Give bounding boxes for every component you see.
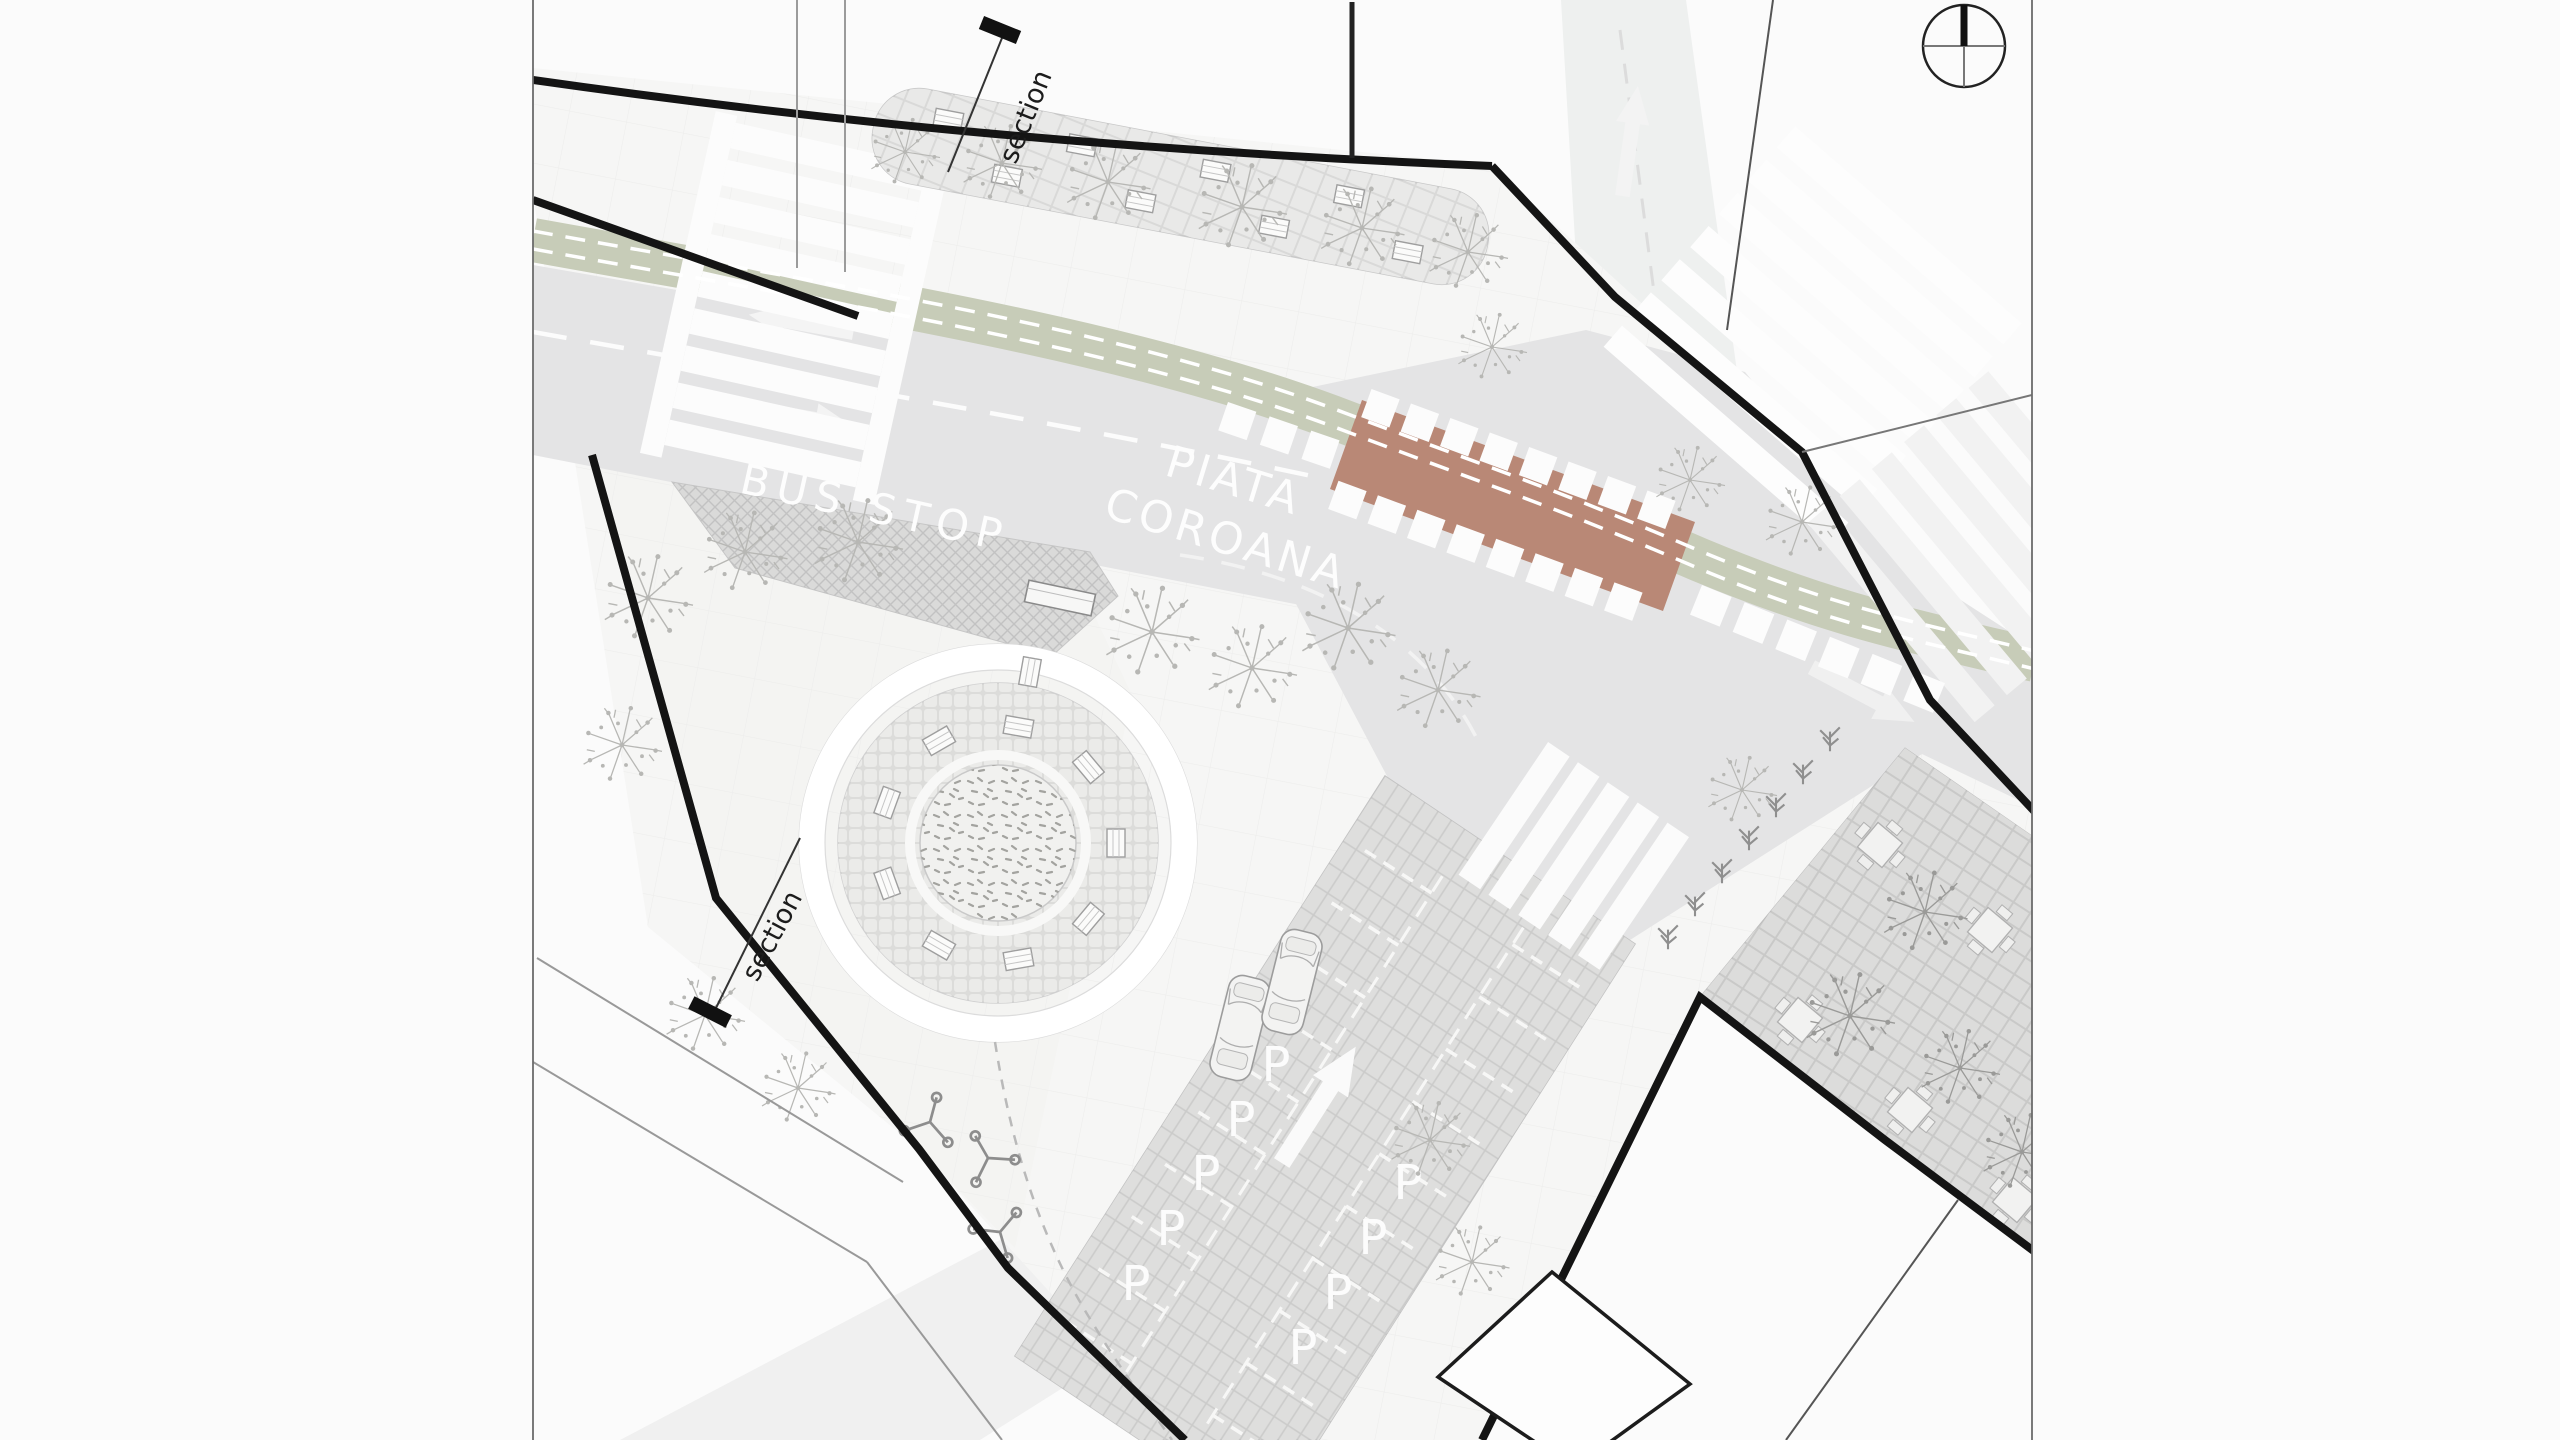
north-arrow-icon xyxy=(1923,5,2005,87)
parking-space-label: P xyxy=(1359,1210,1388,1266)
site-plan-page: P P P P P P P P P xyxy=(0,0,2560,1440)
circular-plaza xyxy=(799,644,1197,1042)
bench-icon xyxy=(1107,829,1125,857)
bench-icon xyxy=(1003,948,1034,971)
parking-space-label: P xyxy=(1157,1201,1186,1257)
parking-space-label: P xyxy=(1192,1146,1221,1202)
bench-icon xyxy=(1019,657,1042,688)
site-plan-svg: P P P P P P P P P xyxy=(0,0,2560,1440)
parking-space-label: P xyxy=(1262,1037,1291,1093)
parking-space-label: P xyxy=(1324,1265,1353,1321)
parking-space-label: P xyxy=(1227,1092,1256,1148)
parking-space-label: P xyxy=(1289,1320,1318,1376)
parking-space-label: P xyxy=(1394,1155,1423,1211)
parking-space-label: P xyxy=(1122,1256,1151,1312)
bench-icon xyxy=(1003,715,1034,738)
